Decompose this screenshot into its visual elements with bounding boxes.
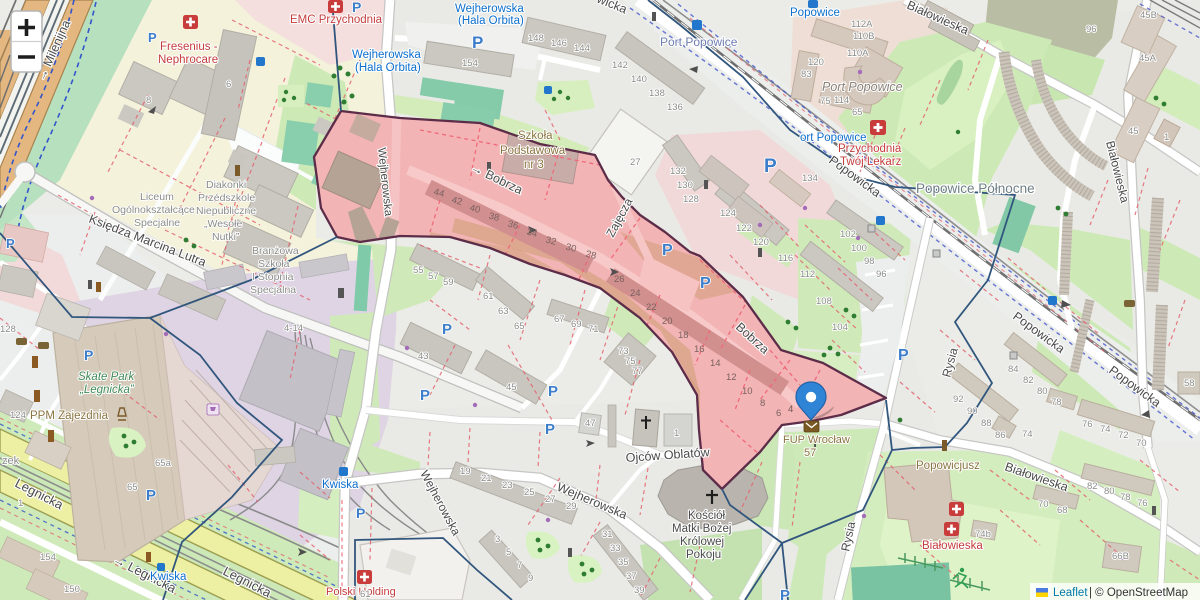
svg-text:61: 61: [483, 291, 494, 302]
svg-text:98: 98: [864, 256, 875, 267]
svg-text:27: 27: [545, 494, 556, 505]
svg-text:Liceum: Liceum: [140, 191, 174, 203]
svg-text:Białowieska: Białowieska: [922, 540, 983, 552]
svg-text:102: 102: [840, 229, 856, 240]
svg-text:110B: 110B: [853, 31, 874, 42]
svg-text:77: 77: [632, 366, 643, 377]
svg-text:P: P: [700, 275, 711, 292]
svg-text:FUP Wrocław: FUP Wrocław: [783, 434, 850, 446]
svg-text:120: 120: [808, 57, 824, 68]
svg-text:65a: 65a: [155, 458, 172, 469]
svg-text:14: 14: [710, 358, 721, 369]
svg-text:132: 132: [670, 166, 686, 177]
svg-text:43: 43: [418, 351, 429, 362]
svg-text:P: P: [780, 587, 790, 600]
svg-text:Niepubliczne: Niepubliczne: [196, 205, 256, 217]
svg-text:23: 23: [502, 480, 513, 491]
svg-text:140: 140: [631, 74, 647, 85]
svg-text:68: 68: [1057, 505, 1068, 516]
svg-text:57: 57: [804, 447, 816, 459]
svg-text:Leaflet: Leaflet: [1053, 587, 1088, 599]
svg-text:Branżowa: Branżowa: [252, 245, 299, 257]
svg-text:76: 76: [1082, 419, 1093, 430]
svg-text:P: P: [146, 487, 156, 504]
svg-text:55: 55: [413, 265, 424, 276]
svg-text:112: 112: [800, 269, 815, 280]
svg-text:19: 19: [460, 466, 471, 477]
svg-text:108: 108: [816, 296, 832, 307]
svg-text:P: P: [442, 321, 452, 338]
svg-text:57: 57: [428, 271, 439, 282]
svg-text:Fresenius -: Fresenius -: [160, 41, 218, 53]
svg-text:Szkoła: Szkoła: [258, 258, 290, 270]
svg-text:78: 78: [1120, 492, 1131, 503]
svg-text:(Hala Orbita): (Hala Orbita): [355, 62, 421, 74]
svg-text:8: 8: [146, 95, 151, 106]
svg-text:9: 9: [528, 573, 533, 584]
svg-text:7: 7: [517, 560, 522, 571]
svg-text:45A: 45A: [1139, 53, 1157, 64]
svg-text:24: 24: [630, 288, 641, 299]
svg-text:P: P: [662, 242, 673, 259]
svg-text:136: 136: [667, 102, 683, 113]
svg-text:150: 150: [64, 584, 80, 595]
svg-text:Popowice Północne: Popowice Północne: [916, 181, 1035, 196]
svg-text:128: 128: [683, 194, 699, 205]
svg-text:142: 142: [612, 60, 628, 71]
svg-text:31: 31: [602, 529, 613, 540]
svg-text:74: 74: [1022, 429, 1033, 440]
svg-text:130: 130: [677, 180, 693, 191]
svg-text:5: 5: [506, 547, 511, 558]
svg-text:| © OpenStreetMap: | © OpenStreetMap: [1089, 587, 1188, 599]
svg-text:Kwiska: Kwiska: [150, 571, 187, 583]
svg-text:29: 29: [566, 501, 577, 512]
svg-text:4-14: 4-14: [284, 323, 303, 334]
svg-text:82: 82: [1023, 375, 1034, 386]
svg-text:P: P: [148, 30, 157, 45]
svg-text:74: 74: [1100, 424, 1111, 435]
svg-text:Królowej: Królowej: [680, 536, 724, 548]
svg-text:Nutki”: Nutki”: [212, 231, 240, 243]
svg-text:112A: 112A: [851, 19, 873, 30]
svg-text:Matki Bożej: Matki Bożej: [672, 523, 731, 535]
svg-text:Pokoju: Pokoju: [686, 549, 721, 561]
svg-text:Szkoła: Szkoła: [518, 130, 553, 142]
svg-text:10: 10: [742, 386, 753, 397]
svg-text:Twój Lekarz: Twój Lekarz: [840, 156, 902, 168]
svg-text:70: 70: [1038, 499, 1049, 510]
svg-text:154: 154: [462, 58, 478, 69]
svg-text:45B: 45B: [1140, 10, 1157, 21]
svg-text:71: 71: [588, 324, 599, 335]
svg-text:21: 21: [481, 473, 492, 484]
svg-text:P: P: [472, 33, 483, 52]
svg-text:92: 92: [953, 394, 964, 405]
svg-text:I Stopnia: I Stopnia: [252, 271, 294, 283]
svg-text:74b: 74b: [975, 529, 991, 540]
svg-text:27: 27: [630, 157, 641, 168]
svg-text:„Wesołe: „Wesołe: [204, 218, 242, 230]
svg-text:61: 61: [360, 589, 371, 600]
svg-text:37: 37: [626, 571, 637, 582]
svg-text:P: P: [6, 236, 15, 251]
svg-text:122: 122: [736, 223, 752, 234]
svg-text:75: 75: [820, 96, 831, 107]
svg-text:33: 33: [610, 543, 621, 554]
svg-text:114: 114: [834, 95, 849, 106]
svg-text:Specjalna: Specjalna: [250, 284, 296, 296]
svg-text:96: 96: [1086, 24, 1097, 35]
svg-text:148: 148: [528, 33, 544, 44]
svg-text:72: 72: [1118, 430, 1129, 441]
svg-text:66B: 66B: [1112, 551, 1129, 562]
svg-text:65: 65: [514, 321, 525, 332]
svg-text:65: 65: [127, 482, 138, 493]
svg-text:P: P: [84, 347, 93, 363]
svg-text:P: P: [352, 0, 361, 15]
svg-text:104: 104: [832, 322, 848, 333]
svg-text:Przychodnia: Przychodnia: [838, 143, 902, 155]
svg-text:67: 67: [554, 314, 565, 325]
svg-text:124: 124: [10, 410, 26, 421]
svg-text:83: 83: [801, 69, 812, 80]
svg-text:80: 80: [1037, 386, 1048, 397]
svg-text:(Hala Orbita): (Hala Orbita): [458, 15, 524, 27]
svg-text:Kwiska: Kwiska: [322, 479, 359, 491]
svg-text:Popowice: Popowice: [790, 7, 840, 19]
svg-text:20: 20: [662, 316, 673, 327]
svg-text:39: 39: [634, 585, 645, 596]
svg-text:nr 3: nr 3: [524, 159, 544, 171]
svg-text:Ogólnokształcące: Ogólnokształcące: [112, 204, 195, 216]
svg-text:zek: zek: [2, 455, 20, 467]
svg-text:84: 84: [1008, 364, 1019, 375]
svg-text:124: 124: [720, 208, 736, 219]
svg-text:„Legnicka”: „Legnicka”: [79, 384, 135, 396]
svg-text:18: 18: [678, 330, 689, 341]
svg-text:65: 65: [852, 107, 863, 118]
svg-text:82: 82: [1087, 481, 1098, 492]
svg-text:1: 1: [674, 428, 679, 439]
svg-text:80: 80: [1104, 486, 1115, 497]
svg-text:6: 6: [226, 79, 231, 90]
svg-text:35: 35: [618, 557, 629, 568]
svg-text:59: 59: [443, 277, 454, 288]
svg-text:Popowicjusz: Popowicjusz: [916, 460, 980, 472]
svg-text:116: 116: [778, 253, 793, 264]
svg-text:1: 1: [18, 498, 23, 509]
svg-text:Port Popowice: Port Popowice: [660, 35, 738, 49]
svg-text:78: 78: [1051, 397, 1062, 408]
svg-text:Wejherowska: Wejherowska: [352, 49, 421, 61]
svg-text:Diakonki: Diakonki: [206, 179, 246, 191]
svg-text:EMC Przychodnia: EMC Przychodnia: [290, 14, 383, 26]
svg-text:Podstawowa: Podstawowa: [500, 145, 566, 157]
svg-text:45: 45: [506, 382, 517, 393]
svg-text:86: 86: [995, 430, 1006, 441]
svg-text:Kościół: Kościół: [688, 510, 726, 522]
svg-text:Wejherowska: Wejherowska: [455, 3, 524, 15]
svg-text:120: 120: [753, 237, 769, 248]
svg-text:8: 8: [760, 398, 765, 409]
svg-text:3: 3: [495, 534, 500, 545]
svg-text:Skate Park: Skate Park: [78, 371, 135, 383]
svg-text:Specjalne: Specjalne: [134, 217, 180, 229]
svg-text:134: 134: [802, 173, 818, 184]
svg-text:96: 96: [876, 269, 887, 280]
svg-text:4: 4: [788, 404, 793, 415]
svg-text:70: 70: [1136, 438, 1147, 449]
svg-text:PPM Zajezdnia: PPM Zajezdnia: [30, 410, 109, 422]
svg-text:P: P: [898, 347, 909, 364]
svg-text:Nephrocare: Nephrocare: [158, 54, 218, 66]
svg-text:12: 12: [726, 372, 737, 383]
svg-text:58: 58: [1184, 378, 1195, 389]
svg-text:100: 100: [851, 243, 867, 254]
svg-text:154: 154: [40, 552, 56, 563]
svg-text:P: P: [548, 383, 558, 400]
svg-text:144: 144: [574, 43, 590, 54]
svg-text:Przédszkole: Przédszkole: [198, 192, 255, 204]
svg-text:76: 76: [1137, 498, 1148, 509]
svg-text:88: 88: [981, 418, 992, 429]
svg-text:P: P: [545, 421, 555, 438]
svg-text:26: 26: [614, 274, 625, 285]
svg-text:45: 45: [1128, 126, 1139, 137]
svg-text:Port Popowice: Port Popowice: [822, 80, 903, 94]
svg-text:110A: 110A: [847, 48, 869, 59]
svg-text:47: 47: [585, 418, 596, 429]
svg-text:146: 146: [551, 38, 567, 49]
svg-text:63: 63: [498, 306, 509, 317]
svg-text:90: 90: [967, 406, 978, 417]
svg-text:1: 1: [1164, 132, 1169, 143]
svg-text:69: 69: [571, 319, 582, 330]
svg-text:22: 22: [646, 302, 657, 313]
svg-text:P: P: [356, 505, 365, 521]
svg-text:16: 16: [694, 344, 705, 355]
svg-text:P: P: [764, 156, 777, 177]
svg-text:P: P: [420, 387, 430, 404]
svg-text:6: 6: [776, 408, 781, 419]
svg-text:128: 128: [0, 324, 16, 335]
svg-text:138: 138: [649, 88, 665, 99]
svg-text:25: 25: [524, 487, 535, 498]
